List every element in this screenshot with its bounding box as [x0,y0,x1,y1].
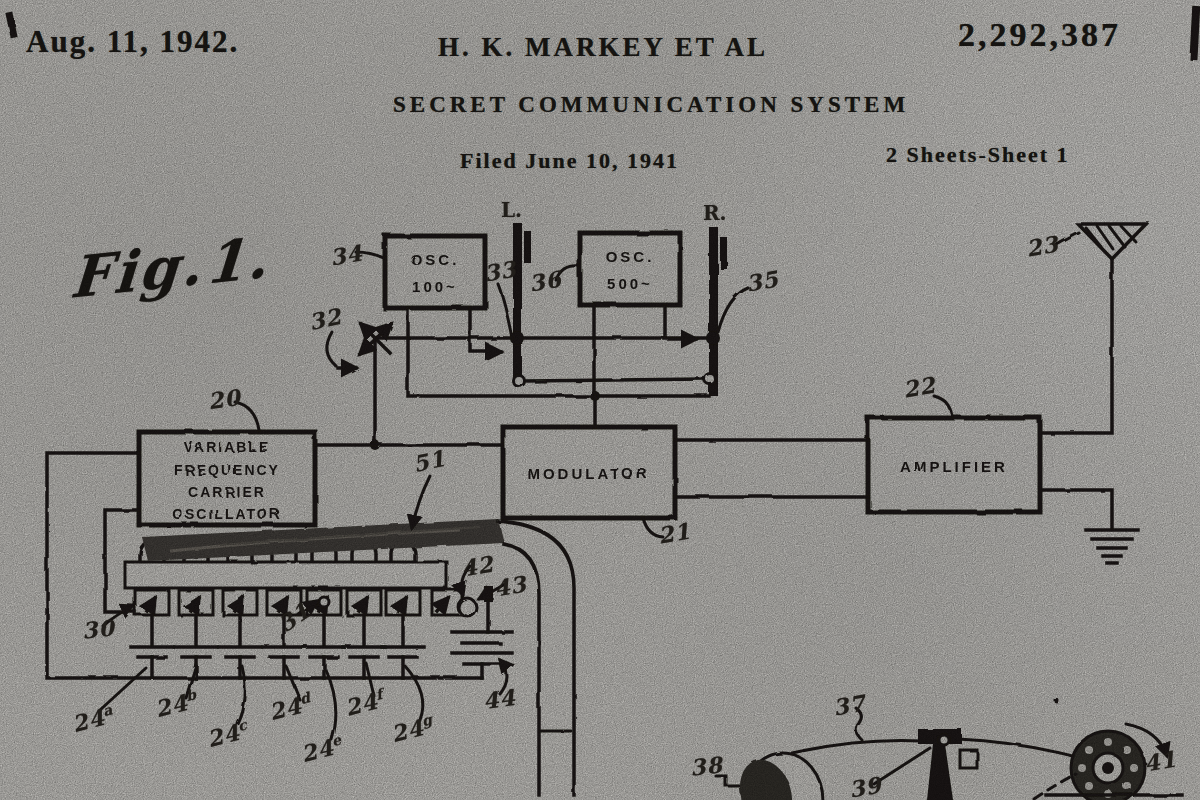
ref-label-21: 21 [656,517,693,548]
ref-label-37: 37 [831,689,868,720]
ref-label-33: 33 [482,255,519,286]
ref-label-L: L. [501,198,522,222]
ref-label-30: 30 [81,614,116,643]
ref-label-39: 39 [847,771,884,800]
ref-label-23: 23 [1024,230,1061,261]
ref-label-35: 35 [744,265,781,296]
ref-label-38: 38 [689,751,724,780]
scan-grain-overlay [0,0,1200,800]
patent-sheet: Aug. 11, 1942. H. K. MARKEY ET AL 2,292,… [0,0,1200,800]
ref-label-41: 41 [1142,745,1179,776]
ref-label-42: 42 [459,550,496,581]
ref-label-34: 34 [328,239,365,270]
ref-label-43: 43 [492,570,529,601]
ref-label-36: 36 [527,265,564,296]
ref-label-44: 44 [481,684,517,714]
ref-label-22: 22 [901,371,938,402]
ref-label-20: 20 [206,384,242,414]
ref-label-R: R. [703,201,727,225]
schematic: AMPLIFIER MODULATOR VARIABLE FREQUENCY C… [0,0,1200,800]
